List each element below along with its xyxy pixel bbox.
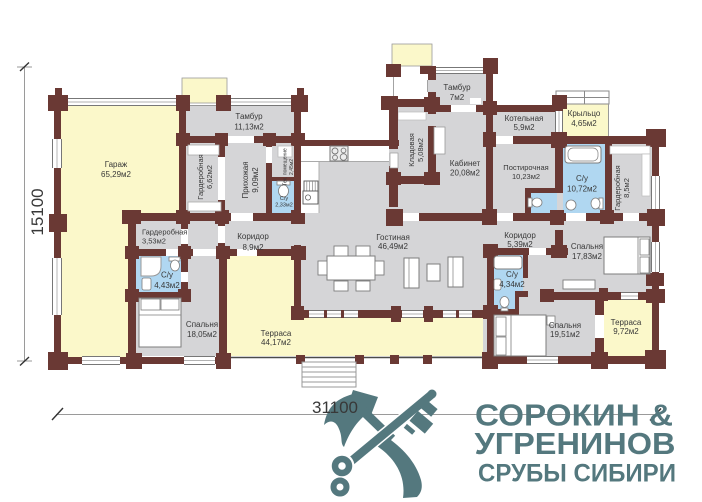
svg-text:15100: 15100 (28, 188, 47, 235)
svg-text:6,62м2: 6,62м2 (205, 165, 214, 189)
svg-text:18,05м2: 18,05м2 (187, 330, 218, 339)
svg-text:С/у: С/у (161, 271, 173, 280)
svg-text:Тамбур: Тамбур (235, 112, 263, 121)
svg-text:11,13м2: 11,13м2 (234, 123, 264, 132)
svg-text:4,43м2: 4,43м2 (154, 281, 180, 290)
svg-text:С/у: С/у (576, 174, 588, 183)
svg-text:Крыльцо: Крыльцо (568, 109, 601, 118)
svg-text:2,33м2: 2,33м2 (275, 203, 293, 209)
svg-text:10,72м2: 10,72м2 (567, 185, 598, 194)
svg-text:46,49м2: 46,49м2 (378, 242, 409, 251)
svg-text:Прихожая: Прихожая (241, 161, 250, 198)
svg-text:31100: 31100 (312, 398, 358, 417)
svg-text:Гардеробная: Гардеробная (613, 165, 622, 210)
svg-text:Гараж: Гараж (105, 160, 128, 169)
svg-text:19,51м2: 19,51м2 (550, 330, 581, 339)
svg-text:Коридор: Коридор (237, 232, 269, 241)
svg-text:Кладовая: Кладовая (407, 133, 416, 167)
svg-text:УГРЕНИНОВ: УГРЕНИНОВ (475, 426, 676, 461)
svg-text:2,45м2: 2,45м2 (289, 159, 295, 175)
svg-text:Спальня: Спальня (186, 320, 218, 329)
svg-text:Терраса: Терраса (611, 318, 642, 327)
svg-text:8,9м2: 8,9м2 (242, 243, 264, 252)
svg-text:5,39м2: 5,39м2 (507, 240, 533, 249)
svg-text:9,09м2: 9,09м2 (251, 167, 260, 193)
svg-text:Гостиная: Гостиная (376, 233, 410, 242)
svg-text:Постирочная: Постирочная (503, 163, 548, 172)
svg-text:8,5м2: 8,5м2 (622, 178, 631, 198)
svg-text:Тех. помещение: Тех. помещение (283, 148, 289, 186)
svg-text:10,23м2: 10,23м2 (512, 172, 540, 181)
svg-text:Коридор: Коридор (504, 231, 536, 240)
svg-text:Кабинет: Кабинет (450, 159, 481, 168)
svg-text:4,34м2: 4,34м2 (499, 280, 525, 289)
svg-text:7м2: 7м2 (450, 93, 465, 102)
svg-text:Гардеробная: Гардеробная (196, 154, 205, 199)
svg-text:5,9м2: 5,9м2 (513, 123, 535, 132)
svg-text:Котельная: Котельная (505, 114, 544, 123)
svg-text:3,53м2: 3,53м2 (142, 237, 166, 246)
svg-text:Гардеробная: Гардеробная (142, 228, 187, 237)
svg-text:Спальня: Спальня (549, 321, 581, 330)
svg-text:4,65м2: 4,65м2 (571, 119, 597, 128)
svg-text:9,72м2: 9,72м2 (613, 327, 639, 336)
svg-text:Спальня: Спальня (571, 242, 603, 251)
svg-text:5,08м2: 5,08м2 (416, 138, 425, 162)
svg-text:17,83м2: 17,83м2 (572, 252, 603, 261)
svg-text:С/у: С/у (280, 196, 289, 202)
svg-text:С/у: С/у (506, 270, 518, 279)
svg-text:65,29м2: 65,29м2 (101, 170, 132, 179)
svg-text:20,08м2: 20,08м2 (450, 169, 481, 178)
svg-text:СРУБЫ СИБИРИ: СРУБЫ СИБИРИ (478, 460, 676, 488)
svg-text:Терраса: Терраса (261, 329, 292, 338)
svg-text:Тамбур: Тамбур (443, 83, 471, 92)
svg-text:44,17м2: 44,17м2 (261, 338, 292, 347)
